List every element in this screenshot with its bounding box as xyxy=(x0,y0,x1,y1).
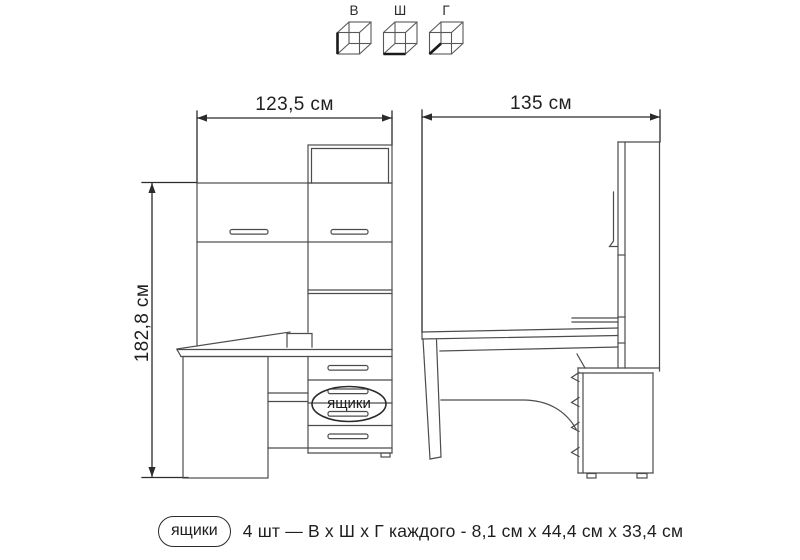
front-view-drawing xyxy=(142,111,392,478)
side-depth-dimension xyxy=(422,110,660,332)
furniture-dimension-diagram: В Ш Г xyxy=(0,0,800,560)
side-depth-dimension-label: 135 см xyxy=(422,93,660,115)
drawers-legend-text: 4 шт — В х Ш х Г каждого - 8,1 см х 44,4… xyxy=(243,521,684,542)
front-width-dimension-label: 123,5 см xyxy=(197,94,392,116)
drawers-callout-label: ящики xyxy=(313,386,385,421)
drawers-legend-badge: ящики xyxy=(158,516,231,547)
drawers-legend: ящики 4 шт — В х Ш х Г каждого - 8,1 см … xyxy=(158,515,683,547)
front-width-dimension xyxy=(197,111,392,183)
side-view-drawing xyxy=(422,110,660,478)
front-height-dimension-label: 182,8 см xyxy=(132,273,154,373)
technical-drawing xyxy=(0,0,800,560)
